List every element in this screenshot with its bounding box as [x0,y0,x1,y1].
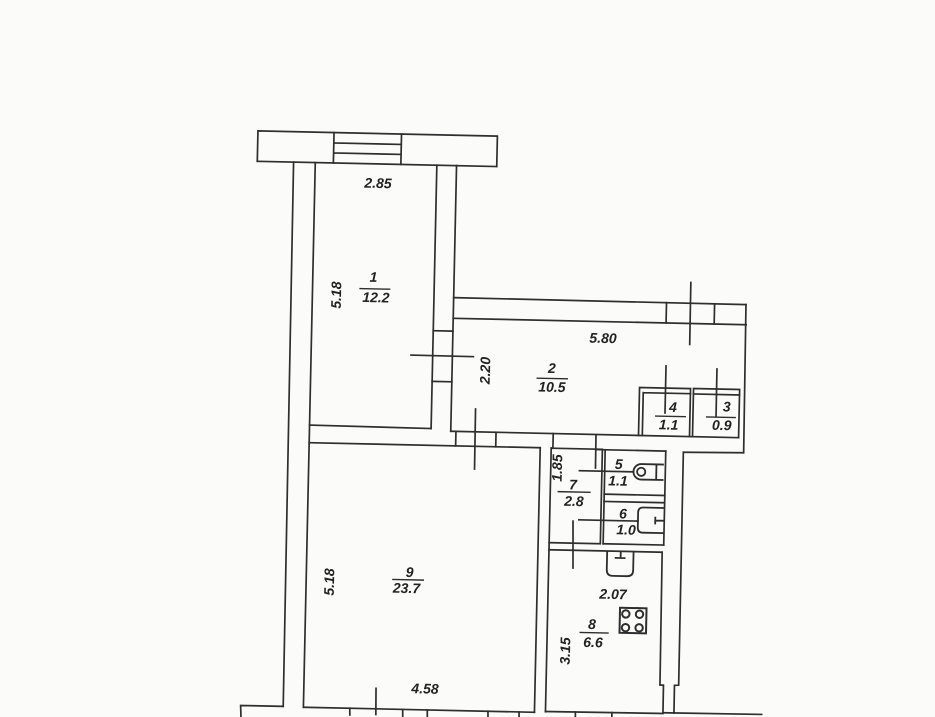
svg-text:3.15: 3.15 [557,637,574,665]
svg-text:2.85: 2.85 [363,175,392,192]
svg-text:12.2: 12.2 [362,289,390,306]
svg-text:23.7: 23.7 [392,580,422,597]
svg-text:1.1: 1.1 [659,416,679,432]
svg-text:5.18: 5.18 [321,568,338,596]
svg-text:9: 9 [406,564,414,580]
svg-text:5.80: 5.80 [589,330,617,347]
svg-text:6.6: 6.6 [583,634,603,650]
svg-text:5: 5 [615,456,623,472]
svg-text:1.0: 1.0 [616,521,636,537]
svg-text:2: 2 [547,360,556,376]
svg-text:1: 1 [369,269,377,285]
svg-text:2.07: 2.07 [598,586,628,603]
svg-text:2.8: 2.8 [563,493,584,509]
svg-text:10.5: 10.5 [538,378,566,395]
svg-text:3: 3 [723,398,731,414]
svg-text:5.18: 5.18 [328,281,345,309]
svg-text:8: 8 [588,616,596,632]
svg-text:1.1: 1.1 [608,472,628,488]
svg-text:0.9: 0.9 [712,417,732,433]
svg-text:4: 4 [668,399,677,415]
svg-text:1.85: 1.85 [549,454,566,482]
svg-text:2.20: 2.20 [477,357,494,386]
svg-text:6: 6 [619,505,627,521]
svg-text:4.58: 4.58 [410,680,439,697]
